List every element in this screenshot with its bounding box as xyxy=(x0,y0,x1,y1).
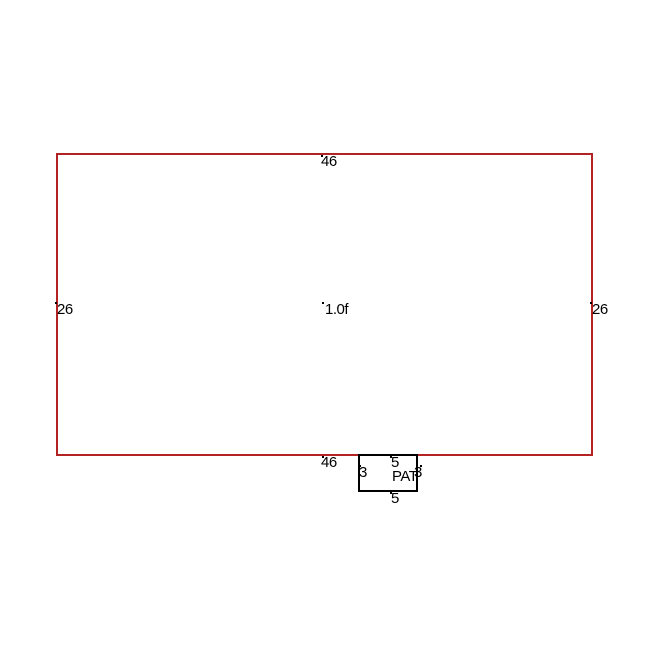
point-marker-center xyxy=(322,302,324,304)
patio-name-label: PAT xyxy=(392,469,417,484)
patio-dimension-left: 3 xyxy=(359,465,367,480)
dimension-label-top: 46 xyxy=(321,154,337,169)
dimension-label-left: 26 xyxy=(57,302,73,317)
area-center-label: 1.0f xyxy=(325,302,348,317)
dimension-label-right: 26 xyxy=(592,302,608,317)
dimension-label-bottom: 46 xyxy=(321,455,337,470)
sketch-canvas[interactable]: 46 46 26 26 1.0f 5 3 3 PAT 5 xyxy=(0,0,649,647)
patio-dimension-bottom: 5 xyxy=(391,491,399,506)
